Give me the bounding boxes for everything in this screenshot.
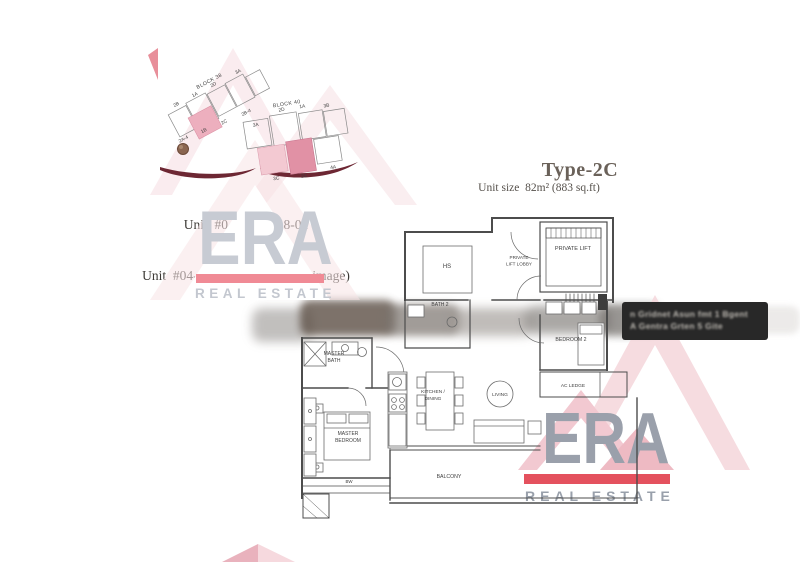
block40-unit-label: 3B xyxy=(323,103,330,110)
block40-unit-label: 2D xyxy=(278,107,286,114)
room-label-master-bath: BATH xyxy=(328,358,341,364)
room-label-master-bath: MASTER xyxy=(324,351,345,357)
room-label-master-bedroom: BEDROOM xyxy=(335,438,361,444)
room-label-balcony: BALCONY xyxy=(437,474,462,480)
block40-label: BLOCK 40 xyxy=(272,99,301,109)
block38-unit-label: 2B-4 xyxy=(241,108,253,118)
hover-tooltip: n Gridnet Asun fmt 1 Bgent A Gentra Grte… xyxy=(622,302,768,340)
floorplan-page: ERA REAL ESTATE ERA REAL ESTATE Unit #04… xyxy=(0,0,800,562)
room-label-kitchen: DINING xyxy=(425,396,442,402)
ribbon-swoosh-icon xyxy=(160,162,358,178)
room-label-hs: HS xyxy=(443,264,451,270)
site-plan-block-key: BLOCK 38 2B 1A 2D 3A 2A-4 1B 2C 2B-4 xyxy=(159,56,358,188)
room-label-kitchen: KITCHEN / xyxy=(421,389,445,395)
room-label-bw: BW xyxy=(345,479,353,484)
block40-unit-label: 1A xyxy=(299,103,307,110)
plan-drawing: BLOCK 38 2B 1A 2D 3A 2A-4 1B 2C 2B-4 xyxy=(0,0,800,562)
room-label-master-bedroom: MASTER xyxy=(338,431,359,437)
block38-highlight-unit xyxy=(188,106,222,139)
block38-unit-label: 2B xyxy=(172,101,180,109)
room-label-lobby: LIFT LOBBY xyxy=(506,262,532,267)
block-38-cluster: BLOCK 38 2B 1A 2D 3A 2A-4 1B 2C 2B-4 xyxy=(159,56,276,150)
room-label-lobby: PRIVATE xyxy=(510,255,529,260)
block40-highlight-unit xyxy=(286,138,317,175)
room-label-ac-ledge: AC LEDGE xyxy=(561,383,585,389)
tooltip-line2: A Gentra Grten 5 Gite xyxy=(630,320,760,332)
room-label-private-lift: PRIVATE LIFT xyxy=(555,246,592,252)
tooltip-line1: n Gridnet Asun fmt 1 Bgent xyxy=(630,308,760,320)
block40-unit-label: 3A xyxy=(252,122,260,129)
room-label-bath2: BATH 2 xyxy=(431,302,448,308)
room-label-bedroom2: BEDROOM 2 xyxy=(555,337,586,343)
compass-icon xyxy=(178,144,189,155)
block38-unit-label: 1A xyxy=(191,91,200,99)
block38-unit-label: 2C xyxy=(220,118,229,126)
block-40-cluster: BLOCK 40 3A 2D 1A 3B 3C 2C 4A xyxy=(241,92,354,187)
block40-unit-label: 4A xyxy=(330,164,338,171)
block40-unit-label: 3C xyxy=(273,175,281,182)
room-label-living: LIVING xyxy=(492,392,508,398)
